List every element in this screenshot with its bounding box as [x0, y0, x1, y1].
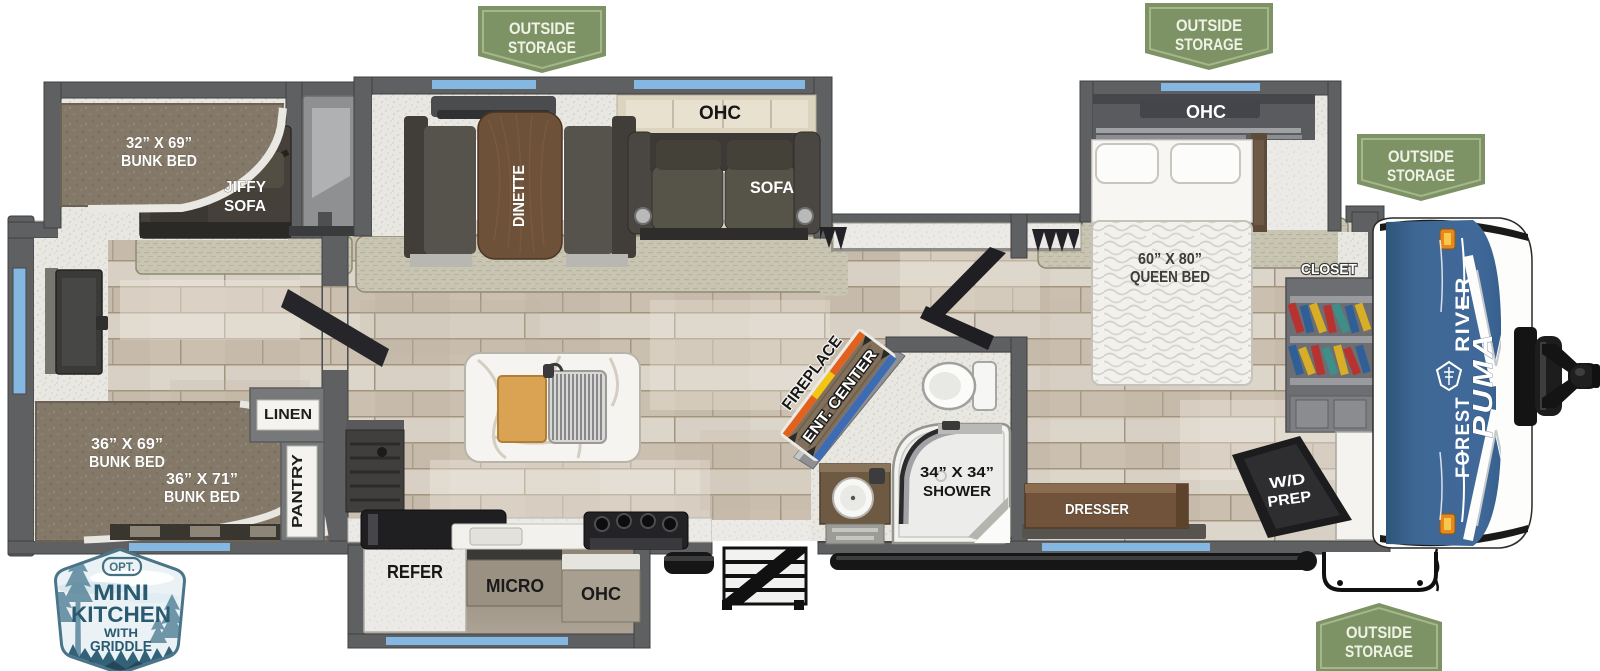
svg-text:BUNK BED: BUNK BED [121, 153, 197, 170]
svg-text:SOFA: SOFA [750, 178, 794, 197]
svg-text:DINETTE: DINETTE [511, 165, 528, 227]
svg-text:34” X 34”: 34” X 34” [920, 464, 994, 481]
svg-text:OPT.: OPT. [109, 562, 135, 574]
svg-text:CLOSET: CLOSET [1301, 261, 1357, 278]
svg-text:GRIDDLE: GRIDDLE [90, 639, 152, 655]
svg-text:MICRO: MICRO [486, 576, 544, 596]
svg-text:KITCHEN: KITCHEN [71, 602, 171, 627]
svg-text:QUEEN BED: QUEEN BED [1130, 269, 1210, 286]
svg-text:DRESSER: DRESSER [1065, 501, 1129, 518]
svg-text:BUNK BED: BUNK BED [164, 489, 240, 506]
svg-text:JIFFY: JIFFY [224, 179, 267, 196]
svg-text:OHC: OHC [699, 103, 741, 124]
svg-text:36” X 69”: 36” X 69” [91, 436, 163, 453]
svg-text:STORAGE: STORAGE [1387, 166, 1455, 185]
svg-text:60” X 80”: 60” X 80” [1138, 251, 1202, 268]
svg-text:REFER: REFER [387, 562, 443, 582]
svg-text:LINEN: LINEN [264, 406, 312, 423]
svg-text:OUTSIDE: OUTSIDE [1346, 623, 1412, 642]
svg-text:36” X 71”: 36” X 71” [166, 471, 238, 488]
svg-text:32” X 69”: 32” X 69” [126, 135, 192, 152]
svg-text:PANTRY: PANTRY [290, 454, 306, 528]
svg-text:STORAGE: STORAGE [508, 38, 576, 57]
svg-text:SOFA: SOFA [224, 198, 266, 215]
svg-text:OUTSIDE: OUTSIDE [1388, 147, 1454, 166]
svg-text:SHOWER: SHOWER [923, 483, 991, 500]
svg-text:STORAGE: STORAGE [1345, 642, 1413, 661]
svg-text:OUTSIDE: OUTSIDE [509, 19, 575, 38]
svg-text:OUTSIDE: OUTSIDE [1176, 16, 1242, 35]
svg-text:OHC: OHC [581, 584, 621, 604]
svg-text:BUNK BED: BUNK BED [89, 454, 165, 471]
svg-text:WITH: WITH [104, 626, 138, 640]
svg-text:PUMA: PUMA [1467, 332, 1498, 438]
svg-text:STORAGE: STORAGE [1175, 35, 1243, 54]
svg-text:OHC: OHC [1186, 102, 1226, 122]
